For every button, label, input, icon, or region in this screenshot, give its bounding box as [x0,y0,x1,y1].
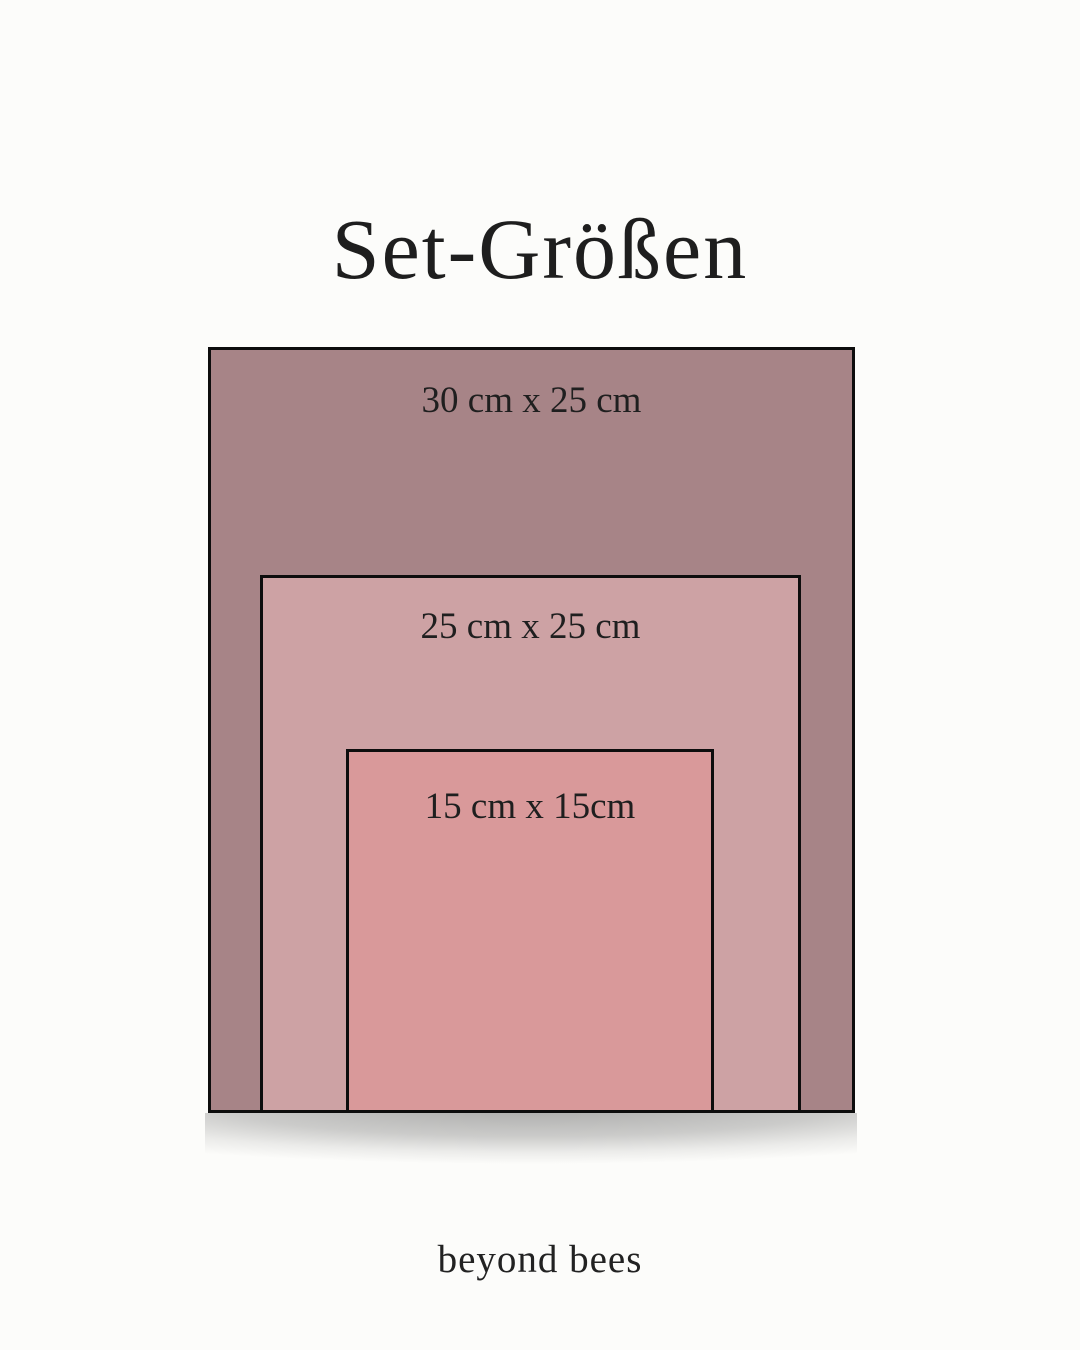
size-label-30x25: 30 cm x 25 cm [211,382,852,419]
size-label-15x15: 15 cm x 15cm [349,788,711,825]
drop-shadow [205,1113,857,1175]
brand-footer: beyond bees [0,1240,1080,1279]
size-rect-15x15: 15 cm x 15cm [346,749,714,1113]
page-title: Set-Größen [0,206,1080,292]
size-chart-canvas: Set-Größen 30 cm x 25 cm 25 cm x 25 cm 1… [0,0,1080,1350]
size-label-25x25: 25 cm x 25 cm [263,608,798,645]
